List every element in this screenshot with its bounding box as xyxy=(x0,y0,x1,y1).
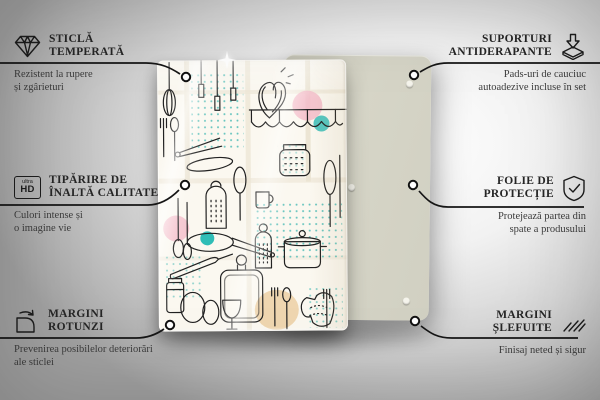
feature-title: TIPĂRIRE DEÎNALTĂ CALITATE xyxy=(49,174,158,200)
diamond-icon xyxy=(14,35,41,58)
feature-title: SUPORTURIANTIDERAPANTE xyxy=(449,33,552,59)
feature-description: Finisaj neted și sigur xyxy=(414,345,586,358)
feature-title: MARGINIȘLEFUITE xyxy=(493,309,552,335)
feature-description: Protejează partea dinspate a produsului xyxy=(414,211,586,236)
feature-tempered-glass: STICLĂTEMPERATĂ Rezistent la rupereși zg… xyxy=(0,30,186,94)
sparkle-highlight xyxy=(218,51,236,69)
feature-polished-edges: MARGINIȘLEFUITE Finisaj neted și sigur xyxy=(414,306,600,358)
feature-title: MARGINIROTUNZI xyxy=(48,308,104,334)
feature-description: Culori intense șio imagine vie xyxy=(14,210,186,235)
rubber-pad xyxy=(348,184,355,191)
feature-description: Pads-uri de cauciucautoadezive incluse î… xyxy=(414,69,586,94)
rounded-corner-icon xyxy=(14,309,40,334)
rubber-pad xyxy=(406,81,413,88)
feature-title: FOLIE DEPROTECȚIE xyxy=(484,175,554,201)
feature-protective-film: FOLIE DEPROTECȚIE Protejează partea dins… xyxy=(414,172,600,236)
pad-press-icon xyxy=(560,33,586,60)
feature-hd-printing: ultra HD TIPĂRIRE DEÎNALTĂ CALITATE Culo… xyxy=(0,171,186,235)
product-feature-sheet: STICLĂTEMPERATĂ Rezistent la rupereși zg… xyxy=(0,0,600,400)
ultra-hd-icon: ultra HD xyxy=(14,176,41,199)
feature-rounded-corners: MARGINIROTUNZI Prevenirea posibilelor de… xyxy=(0,305,186,369)
feature-title: STICLĂTEMPERATĂ xyxy=(49,33,124,59)
polished-edge-icon xyxy=(560,310,586,334)
feature-anti-slip-pads: SUPORTURIANTIDERAPANTE Pads-uri de cauci… xyxy=(414,30,600,94)
feature-description: Rezistent la rupereși zgârieturi xyxy=(14,69,186,94)
rubber-pad xyxy=(403,297,410,304)
shield-check-icon xyxy=(562,175,586,202)
feature-description: Prevenirea posibilelor deteriorăriale st… xyxy=(14,344,186,369)
